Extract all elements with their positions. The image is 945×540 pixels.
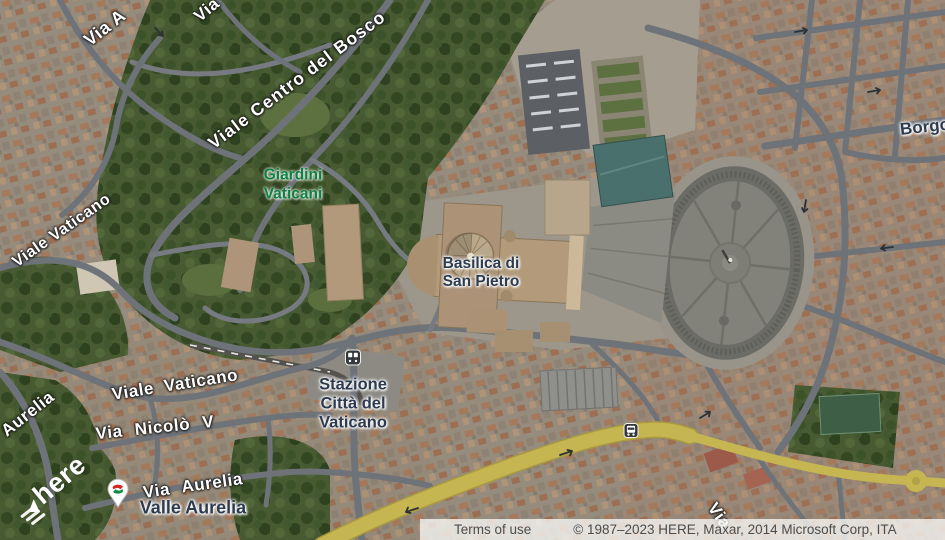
map-viewport[interactable]: Via A Via Viale Centro del Bosco Viale V… xyxy=(0,0,945,540)
attribution-bar: Terms of use © 1987–2023 HERE, Maxar, 20… xyxy=(420,519,945,540)
copyright-text: © 1987–2023 HERE, Maxar, 2014 Microsoft … xyxy=(573,522,896,537)
rail-transit-pin-icon[interactable] xyxy=(107,478,129,513)
satellite-map-canvas[interactable] xyxy=(0,0,945,540)
terms-of-use-link[interactable]: Terms of use xyxy=(454,522,531,537)
